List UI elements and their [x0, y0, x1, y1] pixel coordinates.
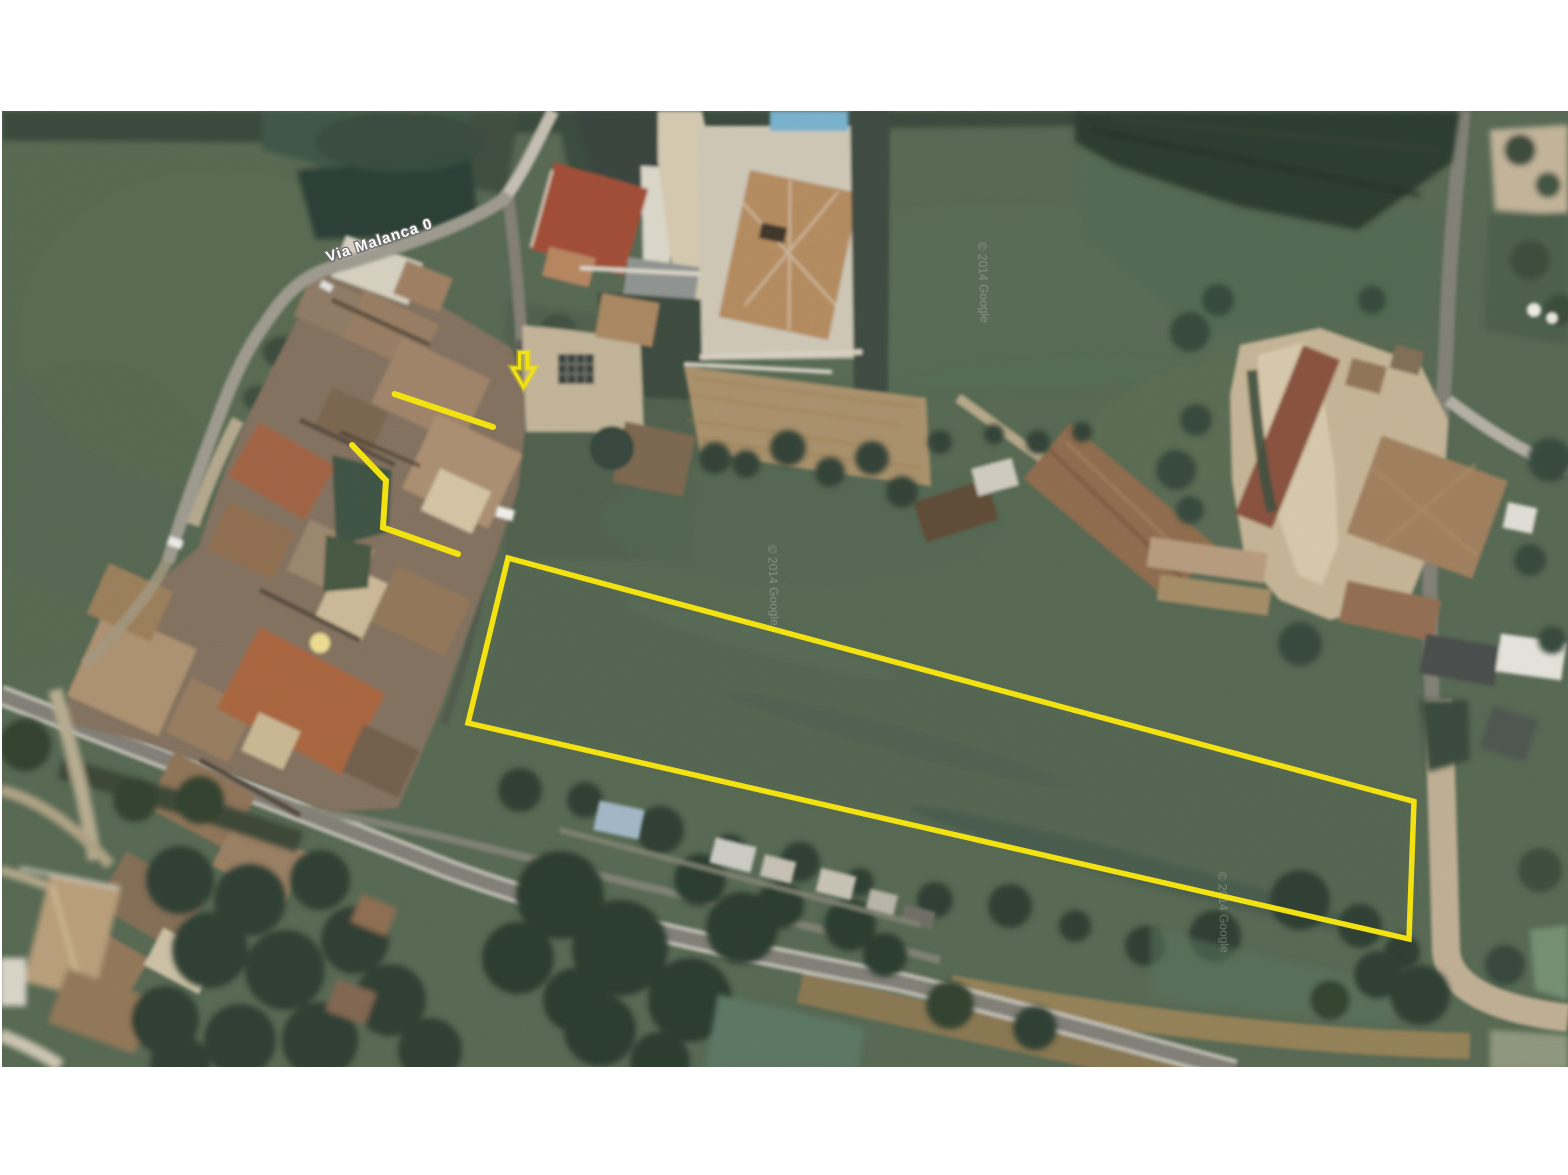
svg-text:© 2014 Google: © 2014 Google	[1215, 872, 1232, 954]
svg-text:© 2014 Google: © 2014 Google	[975, 242, 992, 324]
svg-text:© 2014 Google: © 2014 Google	[765, 545, 782, 627]
